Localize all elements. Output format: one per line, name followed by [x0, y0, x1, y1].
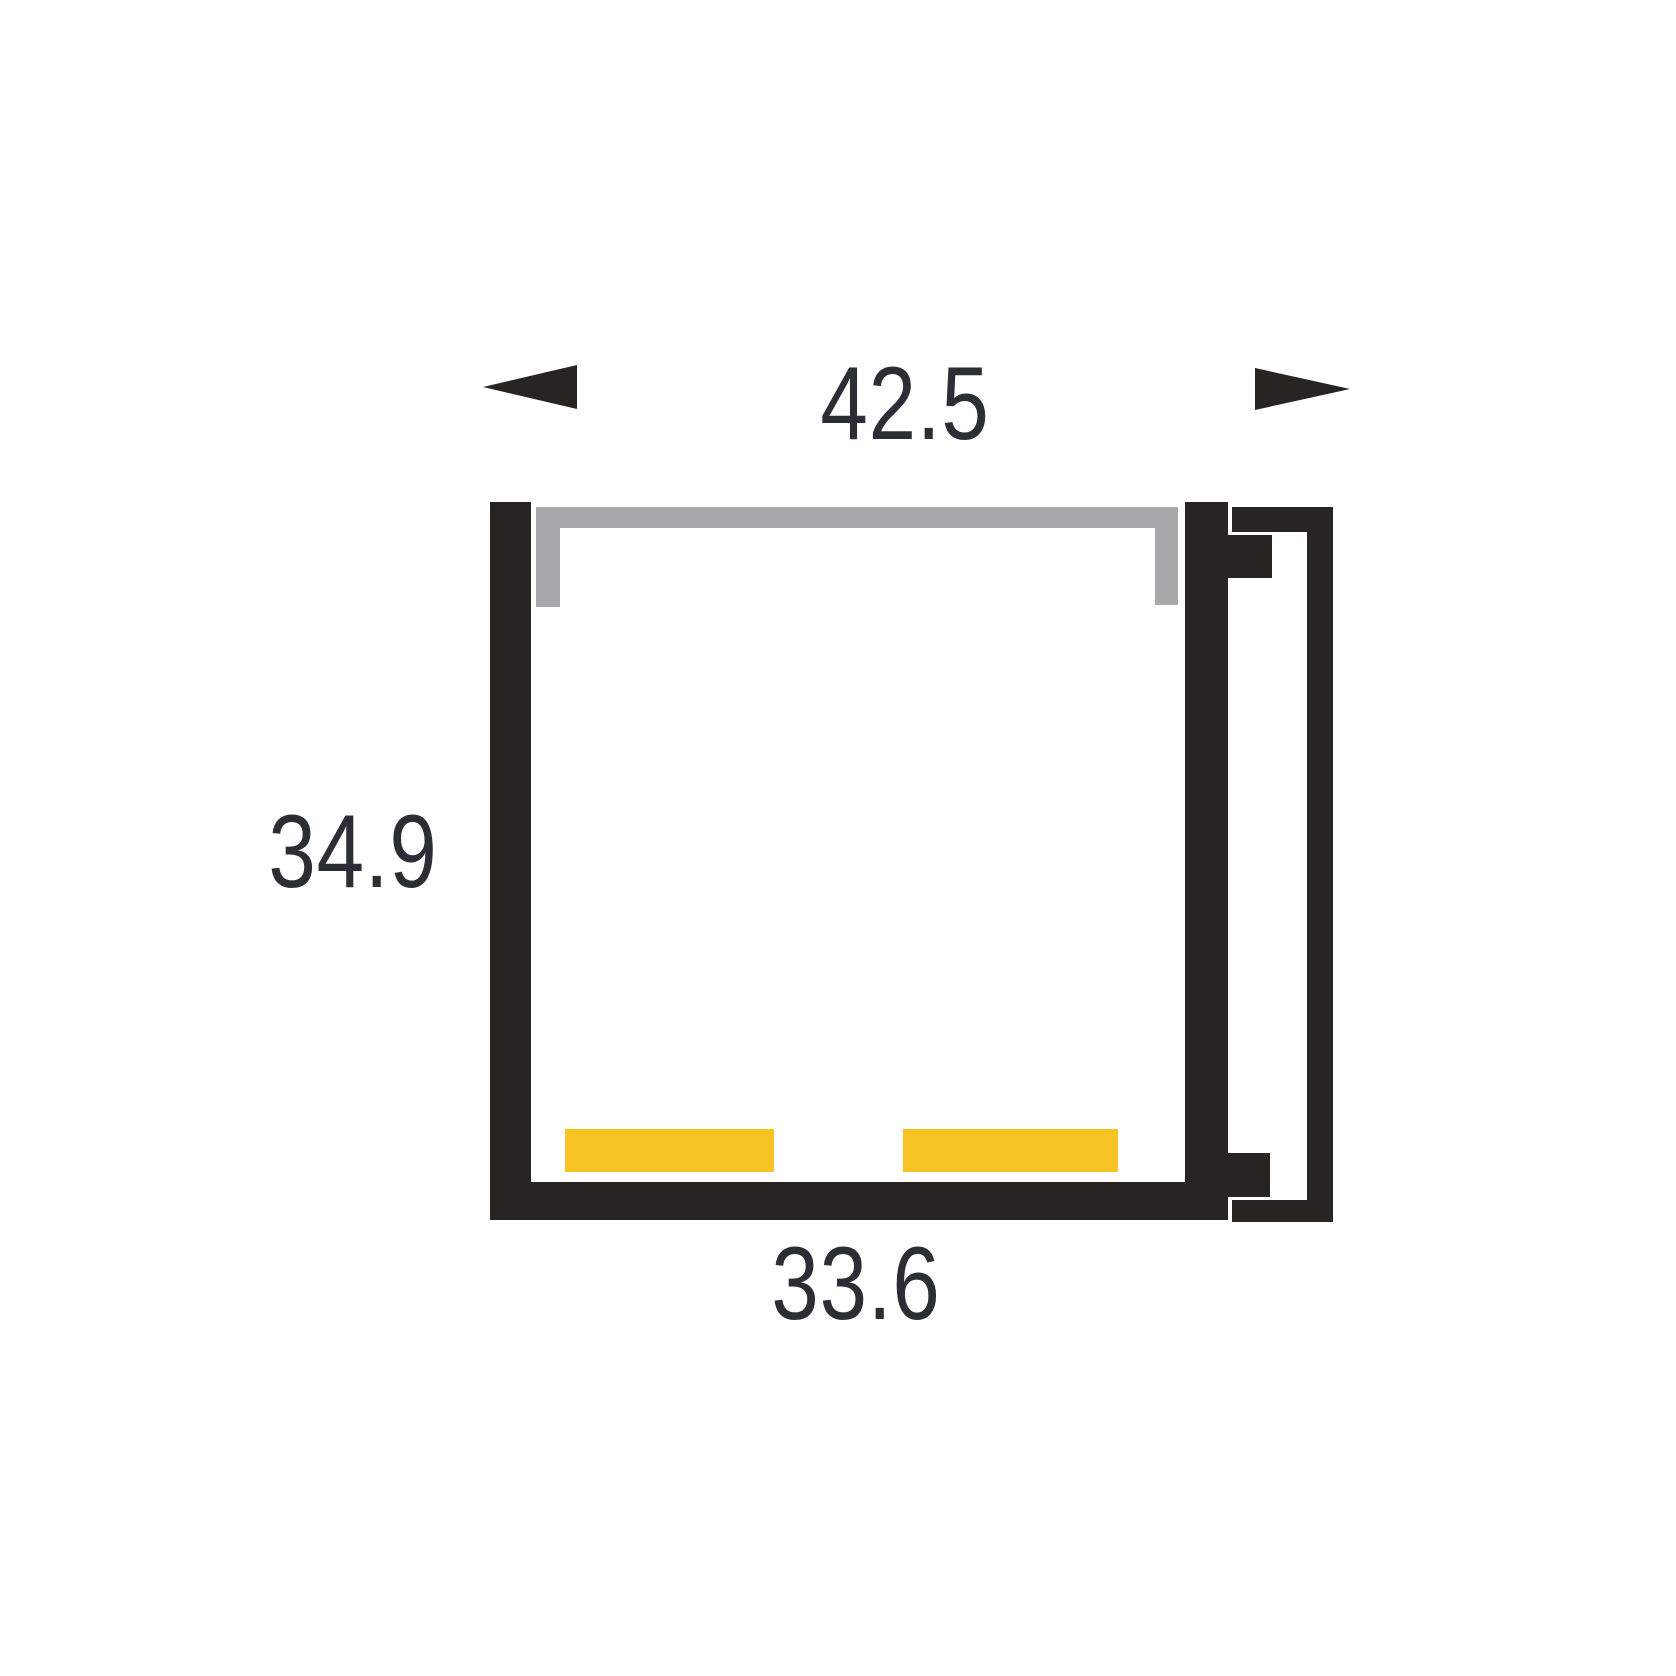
led-strip-left	[565, 1129, 774, 1172]
diffuser-cover-top	[536, 507, 1178, 528]
dimension-label-overall-width: 42.5	[820, 352, 989, 456]
profile-right-wall	[1185, 502, 1228, 1220]
diffuser-cover-left-leg	[536, 507, 560, 607]
led-strip-right	[903, 1129, 1118, 1172]
dimension-arrow-right-icon	[1255, 368, 1350, 410]
dimension-label-inner-width: 33.6	[771, 1232, 940, 1336]
profile-left-wall	[490, 502, 531, 1220]
dimension-label-overall-height: 34.9	[268, 800, 437, 904]
mounting-bracket-bottom-arm	[1232, 1200, 1333, 1222]
diffuser-cover-right-leg	[1155, 507, 1178, 605]
dimension-arrow-left-icon	[483, 365, 577, 409]
profile-cross-section-diagram: 42.5 34.9 33.6	[0, 0, 1676, 1676]
profile-top-latch-hook	[1228, 535, 1272, 578]
mounting-bracket-right-wall	[1307, 507, 1333, 1222]
profile-bottom-wall	[490, 1182, 1228, 1220]
profile-bottom-latch-hook	[1227, 1153, 1270, 1197]
